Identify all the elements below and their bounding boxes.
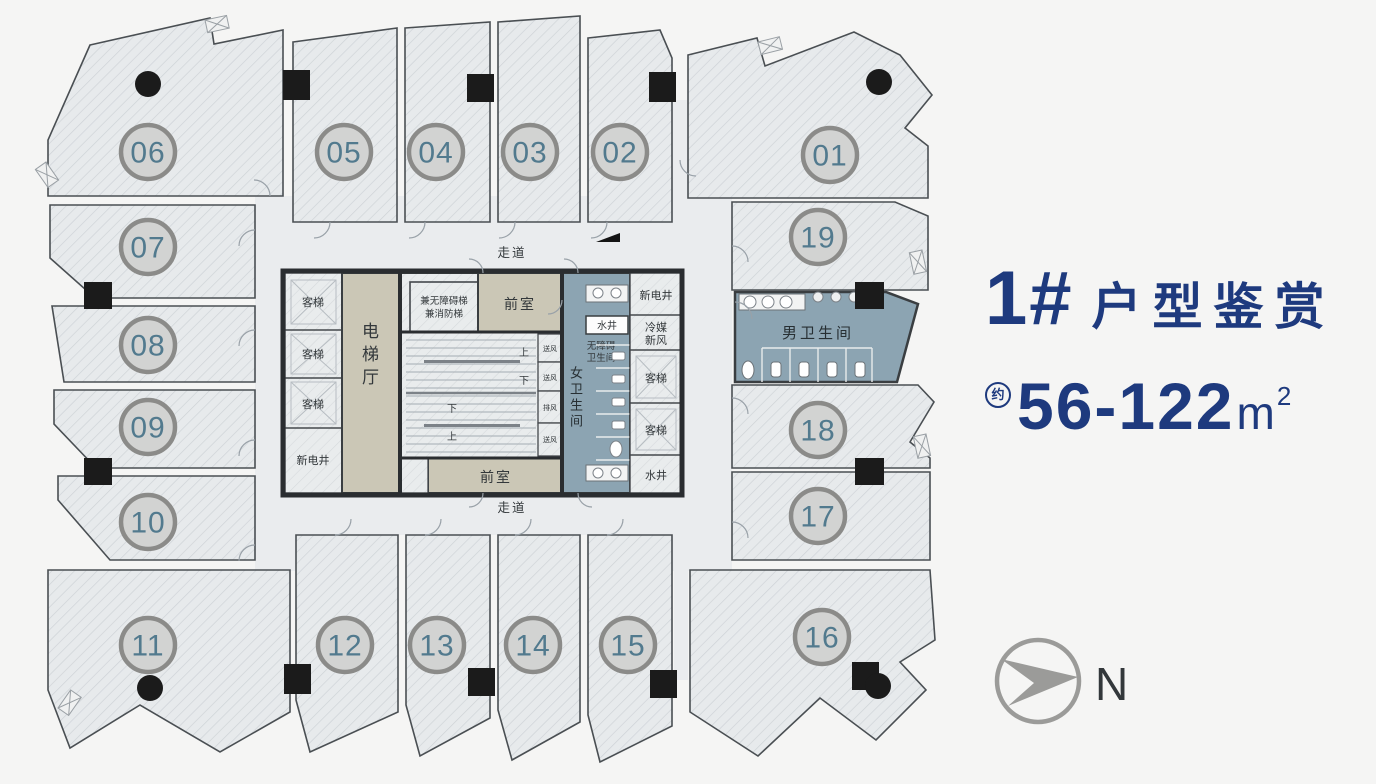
room-label-passenger-elevator-1: 客梯 bbox=[302, 295, 324, 309]
room-label-passenger-elevator-5: 客梯 bbox=[645, 423, 667, 437]
unit-number: 05 bbox=[326, 137, 361, 170]
stair-up-label-2: 上 bbox=[447, 431, 457, 443]
column-icon bbox=[855, 282, 884, 309]
unit-number: 18 bbox=[800, 415, 835, 448]
unit-badge-10: 10 bbox=[121, 495, 175, 549]
unit-badge-02: 02 bbox=[593, 125, 647, 179]
unit-badge-06: 06 bbox=[121, 125, 175, 179]
unit-badge-17: 17 bbox=[791, 489, 845, 543]
column-icon bbox=[855, 458, 884, 485]
unit-number: 13 bbox=[419, 630, 454, 663]
room-label-elevator-hall: 电梯厅 bbox=[360, 322, 377, 391]
column-icon bbox=[84, 282, 112, 309]
sink-icon bbox=[780, 296, 792, 308]
unit-badge-07: 07 bbox=[121, 220, 175, 274]
stair-down-label-1: 下 bbox=[519, 376, 529, 387]
sink-icon bbox=[593, 288, 603, 298]
floorplan-page: 客梯 客梯 客梯 新电井 兼无障碍梯 兼消防梯 前室 上 下 下 上 送风 送风… bbox=[0, 0, 1376, 784]
round-column-icon bbox=[865, 673, 891, 699]
corridor-label-bottom: 走道 bbox=[497, 501, 526, 515]
unit-badge-03: 03 bbox=[503, 125, 557, 179]
unit-badge-01: 01 bbox=[803, 128, 857, 182]
unit-number: 19 bbox=[800, 222, 835, 255]
room-label-passenger-elevator-4: 客梯 bbox=[645, 371, 667, 385]
north-compass: N bbox=[997, 640, 1128, 722]
unit-number: 10 bbox=[130, 507, 165, 540]
room-label-passenger-elevator-2: 客梯 bbox=[302, 347, 324, 361]
shaft-label-supply-air-3: 送风 bbox=[543, 435, 557, 444]
column-icon bbox=[84, 458, 112, 485]
corridor-label-top: 走道 bbox=[497, 246, 526, 260]
unit-number: 15 bbox=[610, 630, 645, 663]
compass-north-label: N bbox=[1095, 658, 1128, 710]
core-block: 客梯 客梯 客梯 新电井 兼无障碍梯 兼消防梯 前室 上 下 下 上 送风 送风… bbox=[283, 271, 682, 495]
shaft-label-exhaust-air: 排风 bbox=[543, 403, 557, 412]
unit-number: 11 bbox=[131, 630, 164, 663]
room-label-accessible-wc-1: 无障碍 bbox=[587, 340, 616, 352]
title-line: 1# 户型鉴赏 bbox=[985, 255, 1365, 342]
womens-sink-counter-top bbox=[586, 285, 628, 302]
room-label-water-shaft-2: 水井 bbox=[645, 468, 667, 482]
shaft-label-supply-air-1: 送风 bbox=[543, 344, 557, 353]
room-label-refrigerant-2: 新风 bbox=[645, 333, 667, 347]
unit-badge-15: 15 bbox=[601, 618, 655, 672]
room-label-new-electric-shaft-left: 新电井 bbox=[297, 453, 330, 467]
column-icon bbox=[649, 72, 676, 102]
room-label-accessible-wc-2: 卫生间 bbox=[587, 352, 616, 364]
compass-arrow-icon bbox=[1001, 659, 1078, 706]
room-label-fire-stair-1: 兼无障碍梯 bbox=[420, 295, 468, 307]
unit-number: 06 bbox=[130, 137, 165, 170]
area-range: 56-122 bbox=[1017, 368, 1235, 444]
unit-number: 16 bbox=[804, 622, 839, 655]
round-column-icon bbox=[866, 69, 892, 95]
room-label-fire-stair-2: 兼消防梯 bbox=[425, 308, 464, 320]
room-label-womens-wc: 女卫生间 bbox=[569, 366, 582, 430]
unit-badge-11: 11 bbox=[121, 618, 175, 672]
unit-badge-08: 08 bbox=[121, 318, 175, 372]
unit-badge-05: 05 bbox=[317, 125, 371, 179]
unit-number: 03 bbox=[512, 137, 547, 170]
stair-down-label-2: 下 bbox=[447, 404, 457, 415]
room-label-front-room-top: 前室 bbox=[504, 296, 536, 312]
unit-badge-14: 14 bbox=[506, 618, 560, 672]
room-label-refrigerant-1: 冷媒 bbox=[645, 321, 667, 334]
shaft-label-supply-air-2: 送风 bbox=[543, 373, 557, 382]
area-line: 约 56-122 m 2 bbox=[985, 368, 1365, 444]
unit-badge-12: 12 bbox=[318, 618, 372, 672]
unit-badge-09: 09 bbox=[121, 400, 175, 454]
sink-icon bbox=[611, 468, 621, 478]
sink-icon bbox=[611, 288, 621, 298]
unit-badge-13: 13 bbox=[410, 618, 464, 672]
womens-sink-counter-bottom bbox=[586, 465, 628, 481]
fire-stair-cell bbox=[410, 282, 478, 332]
unit-number: 07 bbox=[130, 232, 165, 265]
sink-icon bbox=[762, 296, 774, 308]
unit-number: 08 bbox=[130, 330, 165, 363]
building-number: 1# bbox=[985, 255, 1074, 342]
stair-treads bbox=[406, 334, 536, 456]
room-label-new-electric-shaft-right: 新电井 bbox=[640, 288, 673, 302]
room-label-passenger-elevator-3: 客梯 bbox=[302, 397, 324, 411]
mens-restroom: 男卫生间 bbox=[735, 292, 918, 382]
unit-badge-04: 04 bbox=[409, 125, 463, 179]
title-block: 1# 户型鉴赏 约 56-122 m 2 bbox=[985, 255, 1365, 444]
sink-icon bbox=[593, 468, 603, 478]
room-label-mens-wc: 男卫生间 bbox=[782, 325, 854, 342]
unit-badge-16: 16 bbox=[795, 610, 849, 664]
unit-number: 17 bbox=[800, 501, 835, 534]
area-unit: m bbox=[1237, 386, 1275, 440]
area-superscript: 2 bbox=[1277, 381, 1291, 412]
page-title: 户型鉴赏 bbox=[1092, 267, 1336, 339]
column-icon bbox=[650, 670, 677, 698]
room-label-water-shaft-1: 水井 bbox=[597, 319, 617, 332]
approx-badge: 约 bbox=[985, 382, 1011, 408]
unit-badge-19: 19 bbox=[791, 210, 845, 264]
round-column-icon bbox=[137, 675, 163, 701]
column-icon bbox=[284, 664, 311, 694]
unit-badge-18: 18 bbox=[791, 403, 845, 457]
stair-up-label-1: 上 bbox=[519, 347, 529, 359]
unit-area-04 bbox=[405, 22, 490, 222]
unit-number: 12 bbox=[327, 630, 362, 663]
unit-area-03 bbox=[498, 16, 580, 222]
unit-number: 02 bbox=[602, 137, 637, 170]
unit-number: 09 bbox=[130, 412, 165, 445]
unit-number: 14 bbox=[515, 630, 550, 663]
column-icon bbox=[468, 668, 495, 696]
room-label-front-room-bottom: 前室 bbox=[480, 469, 512, 485]
unit-number: 01 bbox=[812, 140, 847, 173]
round-column-icon bbox=[135, 71, 161, 97]
column-icon bbox=[467, 74, 494, 102]
column-icon bbox=[283, 70, 310, 100]
unit-number: 04 bbox=[418, 137, 453, 170]
